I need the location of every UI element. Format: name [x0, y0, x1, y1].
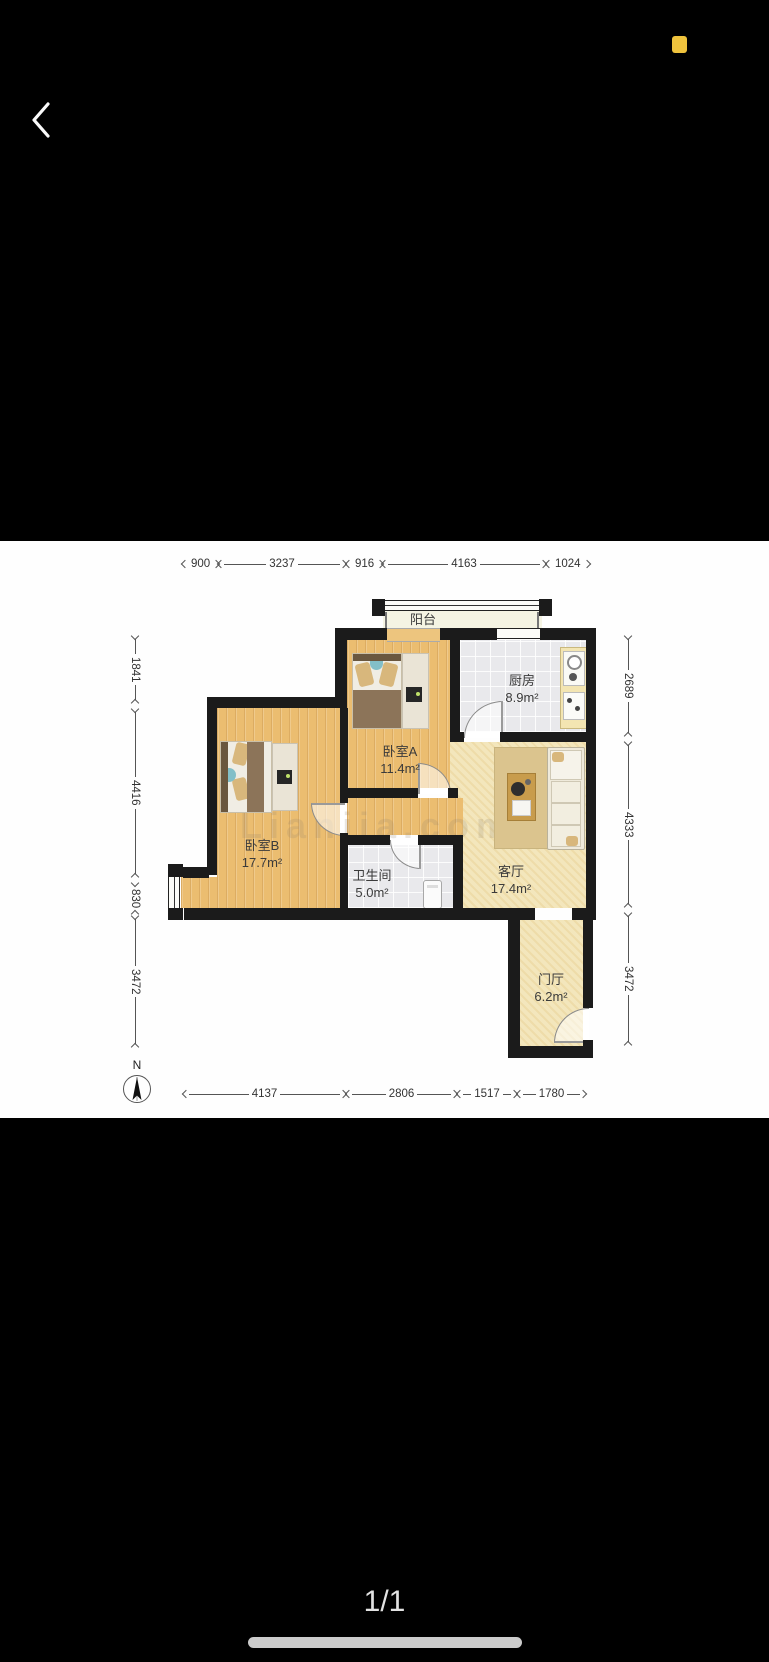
balcony-side: [385, 612, 387, 628]
wall: [418, 835, 463, 845]
bay-window-floor: [181, 877, 217, 908]
bedroom-a-bed: [352, 653, 402, 729]
dim-top-3: 916: [346, 557, 382, 571]
wall: [448, 788, 458, 798]
room-label-balcony: 阳台: [398, 612, 448, 629]
room-label-entry: 门厅6.2m²: [511, 972, 591, 1006]
wall: [335, 628, 387, 640]
kitchen-window: [497, 628, 540, 639]
bedroom-b-wardrobe: [272, 743, 298, 811]
bathroom-fixture: [423, 880, 442, 909]
phone-screen: Lianjia.com: [0, 0, 769, 1662]
dim-left-2: 4416: [128, 706, 142, 880]
dim-bottom-3: 1517: [457, 1087, 517, 1101]
dim-left-4: 3472: [128, 913, 142, 1050]
compass-icon: [122, 1074, 152, 1109]
wall: [508, 1046, 593, 1058]
wall: [207, 697, 347, 708]
wall: [453, 845, 463, 908]
dim-bottom-2: 2806: [346, 1087, 457, 1101]
bay-window: [168, 877, 180, 908]
balcony-door-threshold: [387, 628, 440, 642]
dim-top-5: 1024: [546, 557, 586, 571]
wall: [440, 628, 497, 640]
wall: [450, 640, 460, 742]
battery-icon: [672, 36, 687, 53]
dim-bottom-1: 4137: [183, 1087, 346, 1101]
room-label-kitchen: 厨房8.9m²: [482, 673, 562, 707]
floorplan-image[interactable]: Lianjia.com: [0, 541, 769, 1118]
chevron-left-icon: [28, 100, 54, 140]
dim-bottom-4: 1780: [517, 1087, 586, 1101]
dim-right-3: 3472: [621, 910, 635, 1048]
dim-top-1: 900: [182, 557, 218, 571]
wall: [347, 788, 418, 798]
dim-left-3: 830: [128, 880, 142, 913]
coffee-table: [507, 773, 536, 821]
room-label-living: 客厅17.4m²: [471, 864, 551, 898]
bedroom-b-bed: [220, 741, 272, 813]
dim-top-4: 4163: [382, 557, 546, 571]
wall: [500, 732, 596, 742]
sofa: [547, 747, 585, 850]
room-label-bedroom-b: 卧室B17.7m²: [222, 838, 302, 872]
dim-right-1: 2689: [621, 633, 635, 739]
room-label-bathroom: 卫生间5.0m²: [332, 868, 412, 902]
wall: [207, 708, 217, 875]
bedroom-a-wardrobe: [402, 653, 429, 729]
balcony-window: [385, 600, 539, 611]
dim-top-2: 3237: [218, 557, 346, 571]
wall: [340, 708, 348, 803]
wall: [450, 732, 464, 742]
wall: [586, 628, 596, 920]
back-button[interactable]: [28, 100, 62, 144]
wall: [348, 835, 390, 845]
kitchen-counter: [560, 647, 588, 729]
wall: [539, 599, 552, 616]
bay-post: [168, 864, 183, 877]
home-indicator[interactable]: [248, 1637, 522, 1648]
dim-right-2: 4333: [621, 739, 635, 910]
wall: [372, 599, 385, 616]
balcony-side: [537, 612, 539, 628]
compass-north-label: N: [127, 1058, 147, 1072]
room-label-bedroom-a: 卧室A11.4m²: [360, 744, 440, 778]
wall: [183, 867, 209, 878]
dim-left-1: 1841: [128, 633, 142, 706]
page-indicator: 1/1: [0, 1585, 769, 1619]
bay-post: [168, 908, 183, 920]
wall: [184, 908, 535, 920]
